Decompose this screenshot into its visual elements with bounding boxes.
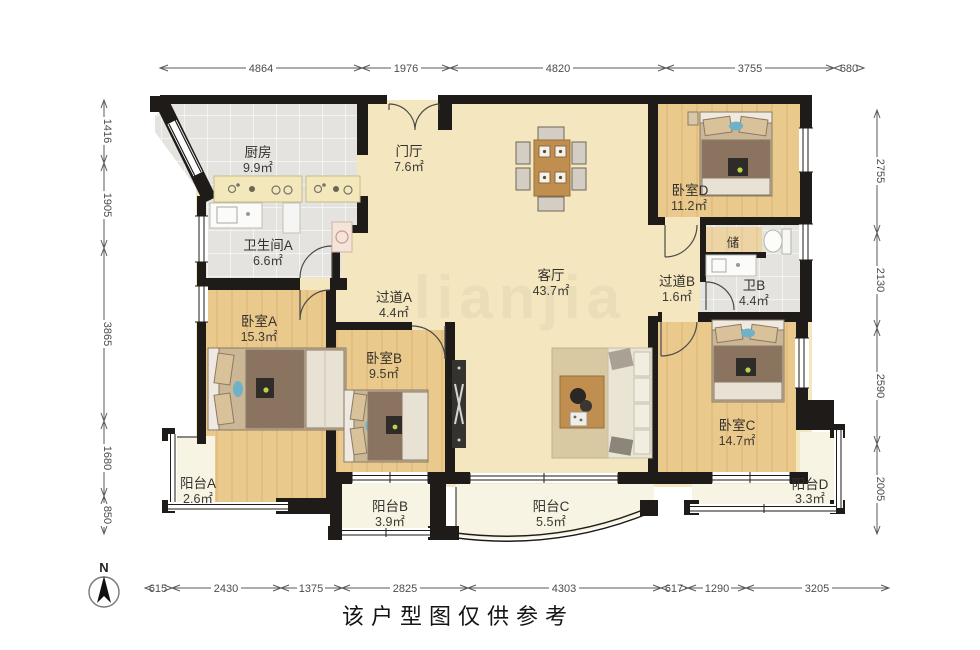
dim-left-3: 1680	[101, 446, 113, 470]
balcony-d-area: 3.3㎡	[795, 492, 825, 506]
corridor-b-area: 1.6㎡	[662, 290, 692, 304]
dim-left-1: 1905	[101, 193, 113, 217]
bedroom-a-label: 卧室A	[241, 313, 277, 329]
dim-bottom-2: 1375	[299, 583, 323, 595]
compass: N	[89, 560, 119, 607]
bath-a-area: 6.6㎡	[253, 254, 283, 268]
dim-bottom-1: 2430	[214, 583, 238, 595]
dim-bottom-7: 3205	[805, 583, 829, 595]
bedroom-c-label: 卧室C	[719, 417, 756, 433]
dim-right-2: 2590	[874, 374, 886, 398]
floor-plan-svg: lianjia	[0, 0, 980, 650]
balcony-d-label: 阳台D	[792, 477, 829, 492]
dim-top-3: 3755	[738, 63, 762, 75]
dim-bottom-4: 4303	[552, 583, 576, 595]
bedroom-c-area: 14.7㎡	[719, 434, 756, 448]
dim-left-2: 3865	[101, 322, 113, 346]
bath-a-label: 卫生间A	[243, 238, 293, 253]
watermark-text: lianjia	[414, 264, 626, 331]
dim-top-2: 4820	[546, 63, 570, 75]
balcony-c-label: 阳台C	[533, 499, 570, 514]
bedroom-a-area: 15.3㎡	[241, 330, 278, 344]
bedroom-b-area: 9.5㎡	[369, 367, 399, 381]
compass-needle-icon	[97, 576, 111, 603]
dim-bottom-5: 617	[665, 583, 683, 595]
floor-plan-page: lianjia	[0, 0, 980, 650]
foyer-label: 门厅	[396, 144, 423, 159]
dim-bottom-3: 2825	[393, 583, 417, 595]
tv-stand	[452, 360, 466, 448]
kitchen-label: 厨房	[245, 145, 272, 160]
dim-top-0: 4864	[249, 63, 273, 75]
caption: 该户型图仅供参考	[342, 604, 574, 629]
dim-bottom-0: 615	[149, 583, 167, 595]
dim-bottom-6: 1290	[705, 583, 729, 595]
bedroom-d-area: 11.2㎡	[671, 199, 707, 213]
bedroom-d-label: 卧室D	[672, 182, 709, 198]
bath-b-label: 卫B	[743, 278, 766, 293]
dim-top-4: 680	[840, 63, 858, 75]
kitchen-area: 9.9㎡	[243, 161, 273, 175]
bed-c	[712, 320, 784, 402]
bath-b-area: 4.4㎡	[739, 294, 769, 308]
corridor-a-area: 4.4㎡	[379, 306, 409, 320]
corridor-b-label: 过道B	[659, 274, 695, 289]
bed-a	[208, 348, 346, 430]
storage-label: 储	[727, 235, 740, 250]
dim-right-1: 2130	[874, 268, 886, 292]
bed-b	[344, 390, 428, 462]
balcony-a-label: 阳台A	[180, 476, 216, 491]
balcony-a-area: 2.6㎡	[183, 492, 213, 506]
corridor-a-label: 过道A	[376, 290, 412, 305]
kitchen-counter	[214, 176, 360, 202]
dim-right-0: 2755	[874, 159, 886, 183]
living-set	[552, 348, 652, 458]
dim-left-4: 850	[101, 506, 113, 524]
dim-right-3: 2005	[874, 477, 886, 501]
balcony-c-area: 5.5㎡	[536, 515, 566, 529]
living-label: 客厅	[538, 267, 565, 283]
bedroom-b-label: 卧室B	[366, 350, 402, 366]
compass-n-label: N	[99, 560, 108, 575]
balcony-b-label: 阳台B	[372, 499, 408, 514]
foyer-area: 7.6㎡	[394, 160, 424, 174]
dim-left-0: 1416	[101, 119, 113, 143]
living-area: 43.7㎡	[533, 284, 570, 298]
balcony-b-area: 3.9㎡	[375, 515, 405, 529]
dim-top-1: 1976	[394, 63, 418, 75]
